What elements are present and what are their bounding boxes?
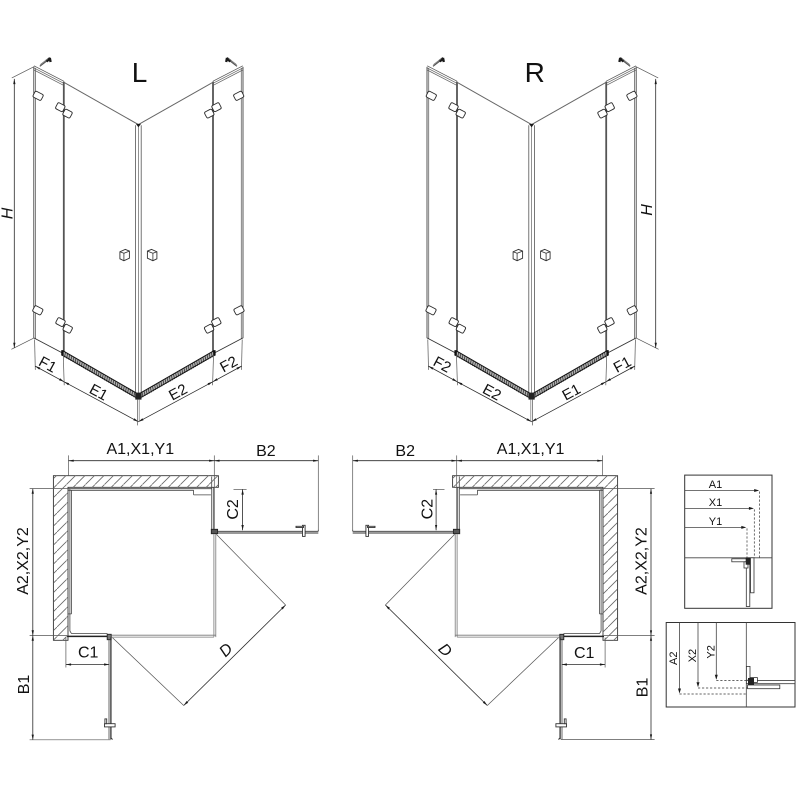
svg-text:Y1: Y1 [709, 516, 722, 528]
svg-text:A2,X2,Y2: A2,X2,Y2 [15, 527, 32, 595]
svg-text:B1: B1 [635, 678, 652, 698]
svg-text:A2,X2,Y2: A2,X2,Y2 [633, 527, 650, 595]
svg-text:C2: C2 [420, 499, 437, 520]
svg-text:A1,X1,Y1: A1,X1,Y1 [497, 441, 565, 458]
svg-text:H: H [639, 204, 656, 216]
svg-text:C1: C1 [574, 645, 595, 662]
svg-text:B2: B2 [395, 443, 415, 460]
svg-text:C1: C1 [78, 645, 99, 662]
svg-text:B1: B1 [16, 675, 33, 695]
svg-text:X2: X2 [687, 649, 699, 662]
svg-text:A2: A2 [668, 651, 680, 664]
svg-text:H: H [0, 207, 17, 219]
svg-text:X1: X1 [709, 497, 722, 509]
svg-text:A1: A1 [709, 479, 722, 491]
svg-text:L: L [132, 57, 148, 88]
svg-text:B2: B2 [256, 443, 276, 460]
svg-text:A1,X1,Y1: A1,X1,Y1 [106, 441, 174, 458]
svg-text:C2: C2 [225, 499, 242, 520]
svg-text:R: R [525, 57, 545, 88]
